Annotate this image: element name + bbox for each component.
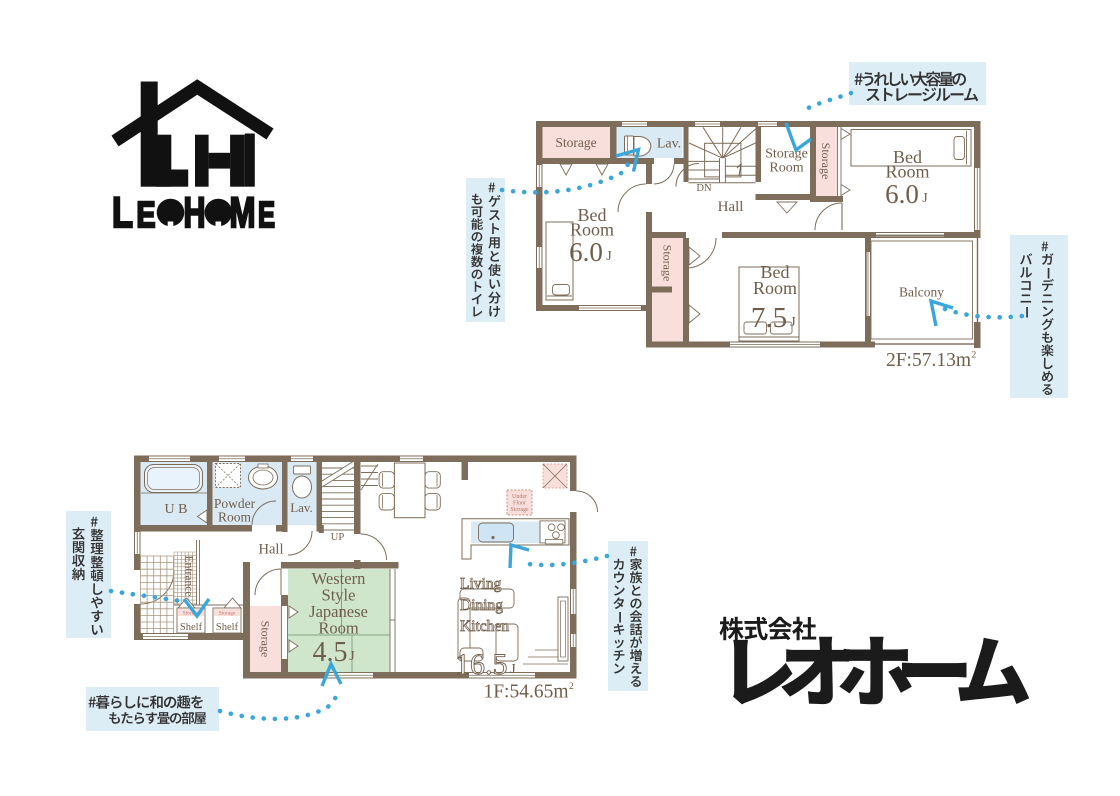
svg-text:H: H (184, 189, 206, 237)
svg-text:Hall: Hall (259, 542, 284, 558)
svg-text:Storage: Storage (555, 135, 596, 150)
svg-text:Lav.: Lav. (290, 500, 313, 515)
svg-text:J: J (349, 649, 355, 664)
svg-text:UP: UP (331, 532, 345, 543)
svg-text:Shelf: Shelf (216, 622, 239, 633)
svg-text:M: M (230, 189, 256, 237)
svg-text:Lav.: Lav. (657, 137, 681, 152)
svg-text:Room: Room (218, 510, 252, 525)
svg-text:2F:57.13m: 2F:57.13m (886, 350, 971, 371)
svg-text:Hall: Hall (718, 199, 744, 215)
svg-text:J: J (922, 191, 928, 206)
svg-text:7.5: 7.5 (751, 302, 787, 334)
svg-text:16.5: 16.5 (455, 648, 508, 681)
svg-text:Storage: Storage (819, 143, 833, 180)
svg-text:Room: Room (753, 278, 797, 298)
svg-text:1F:54.65m: 1F:54.65m (483, 682, 568, 703)
svg-text:Living: Living (460, 576, 502, 593)
svg-text:2: 2 (972, 351, 977, 361)
svg-text:Kitchen: Kitchen (460, 618, 509, 635)
svg-text:E: E (137, 194, 156, 235)
svg-text:2: 2 (569, 682, 574, 692)
svg-text:Dining: Dining (460, 597, 503, 614)
svg-text:Shelf: Shelf (180, 622, 203, 633)
svg-text:Under: Under (512, 494, 527, 500)
svg-text:Room: Room (318, 619, 359, 638)
svg-text:Entrance: Entrance (183, 556, 195, 597)
svg-text:DN: DN (696, 183, 712, 194)
svg-text:J: J (790, 315, 796, 330)
svg-text:Storage: Storage (258, 621, 272, 658)
svg-text:Storage: Storage (765, 147, 808, 162)
svg-text:Floor: Floor (513, 501, 526, 507)
svg-text:Storage: Storage (660, 245, 674, 282)
svg-text:E: E (258, 194, 275, 235)
svg-text:J: J (606, 249, 612, 264)
svg-text:Room: Room (769, 161, 803, 176)
svg-text:U B: U B (165, 502, 188, 517)
svg-text:6.0: 6.0 (569, 237, 603, 267)
svg-text:Storage: Storage (219, 611, 236, 617)
svg-text:J: J (510, 662, 516, 677)
svg-text:6.0: 6.0 (885, 179, 919, 209)
svg-text:Storage: Storage (510, 507, 529, 513)
svg-text:L: L (112, 189, 133, 237)
svg-text:Balcony: Balcony (899, 285, 944, 300)
